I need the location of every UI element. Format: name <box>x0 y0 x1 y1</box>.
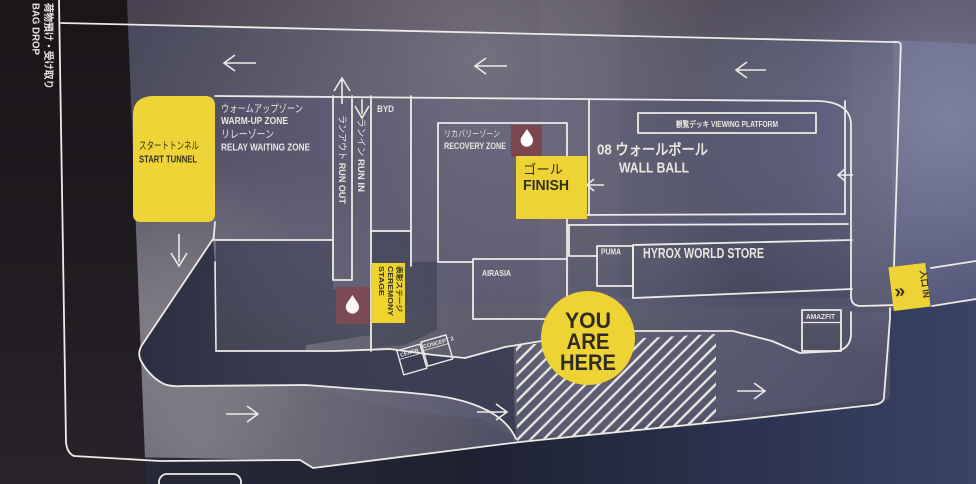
svg-text:08 ウォールボール: 08 ウォールボール <box>597 142 708 159</box>
svg-text:FINISH: FINISH <box>523 177 569 194</box>
svg-text:観覧デッキ VIEWING PLATFORM: 観覧デッキ VIEWING PLATFORM <box>676 119 778 129</box>
svg-text:表彰ステージ: 表彰ステージ <box>395 265 404 312</box>
svg-text:AMAZFIT: AMAZFIT <box>806 312 835 321</box>
svg-text:STAGE: STAGE <box>377 266 384 296</box>
svg-text:ウォームアップゾーン: ウォームアップゾーン <box>221 103 303 115</box>
svg-text:START TUNNEL: START TUNNEL <box>139 154 197 166</box>
svg-text:WARM-UP ZONE: WARM-UP ZONE <box>221 115 288 127</box>
svg-text:ランイン RUN IN: ランイン RUN IN <box>355 118 366 192</box>
svg-text:HYROX WORLD STORE: HYROX WORLD STORE <box>643 246 764 262</box>
svg-text:AIRASIA: AIRASIA <box>482 268 511 278</box>
svg-text:BAG DROP: BAG DROP <box>30 3 42 55</box>
svg-text:PUMA: PUMA <box>601 248 621 257</box>
svg-text:BYD: BYD <box>377 104 394 115</box>
svg-text:RELAY WAITING ZONE: RELAY WAITING ZONE <box>221 142 310 154</box>
svg-text:リカバリーゾーン: リカバリーゾーン <box>444 129 500 139</box>
svg-text:ランアウト RUN OUT: ランアウト RUN OUT <box>336 115 347 204</box>
svg-text:HERE: HERE <box>560 350 616 375</box>
svg-text:CEREMONY: CEREMONY <box>386 266 393 316</box>
svg-text:WALL BALL: WALL BALL <box>619 160 689 177</box>
svg-text:スタートトンネル: スタートトンネル <box>139 140 199 152</box>
svg-text:リレーゾーン: リレーゾーン <box>221 129 274 141</box>
svg-text:ゴール: ゴール <box>523 162 563 177</box>
svg-text:荷物預け・受け取り: 荷物預け・受け取り <box>42 2 55 89</box>
svg-text:RECOVERY ZONE: RECOVERY ZONE <box>444 141 506 151</box>
